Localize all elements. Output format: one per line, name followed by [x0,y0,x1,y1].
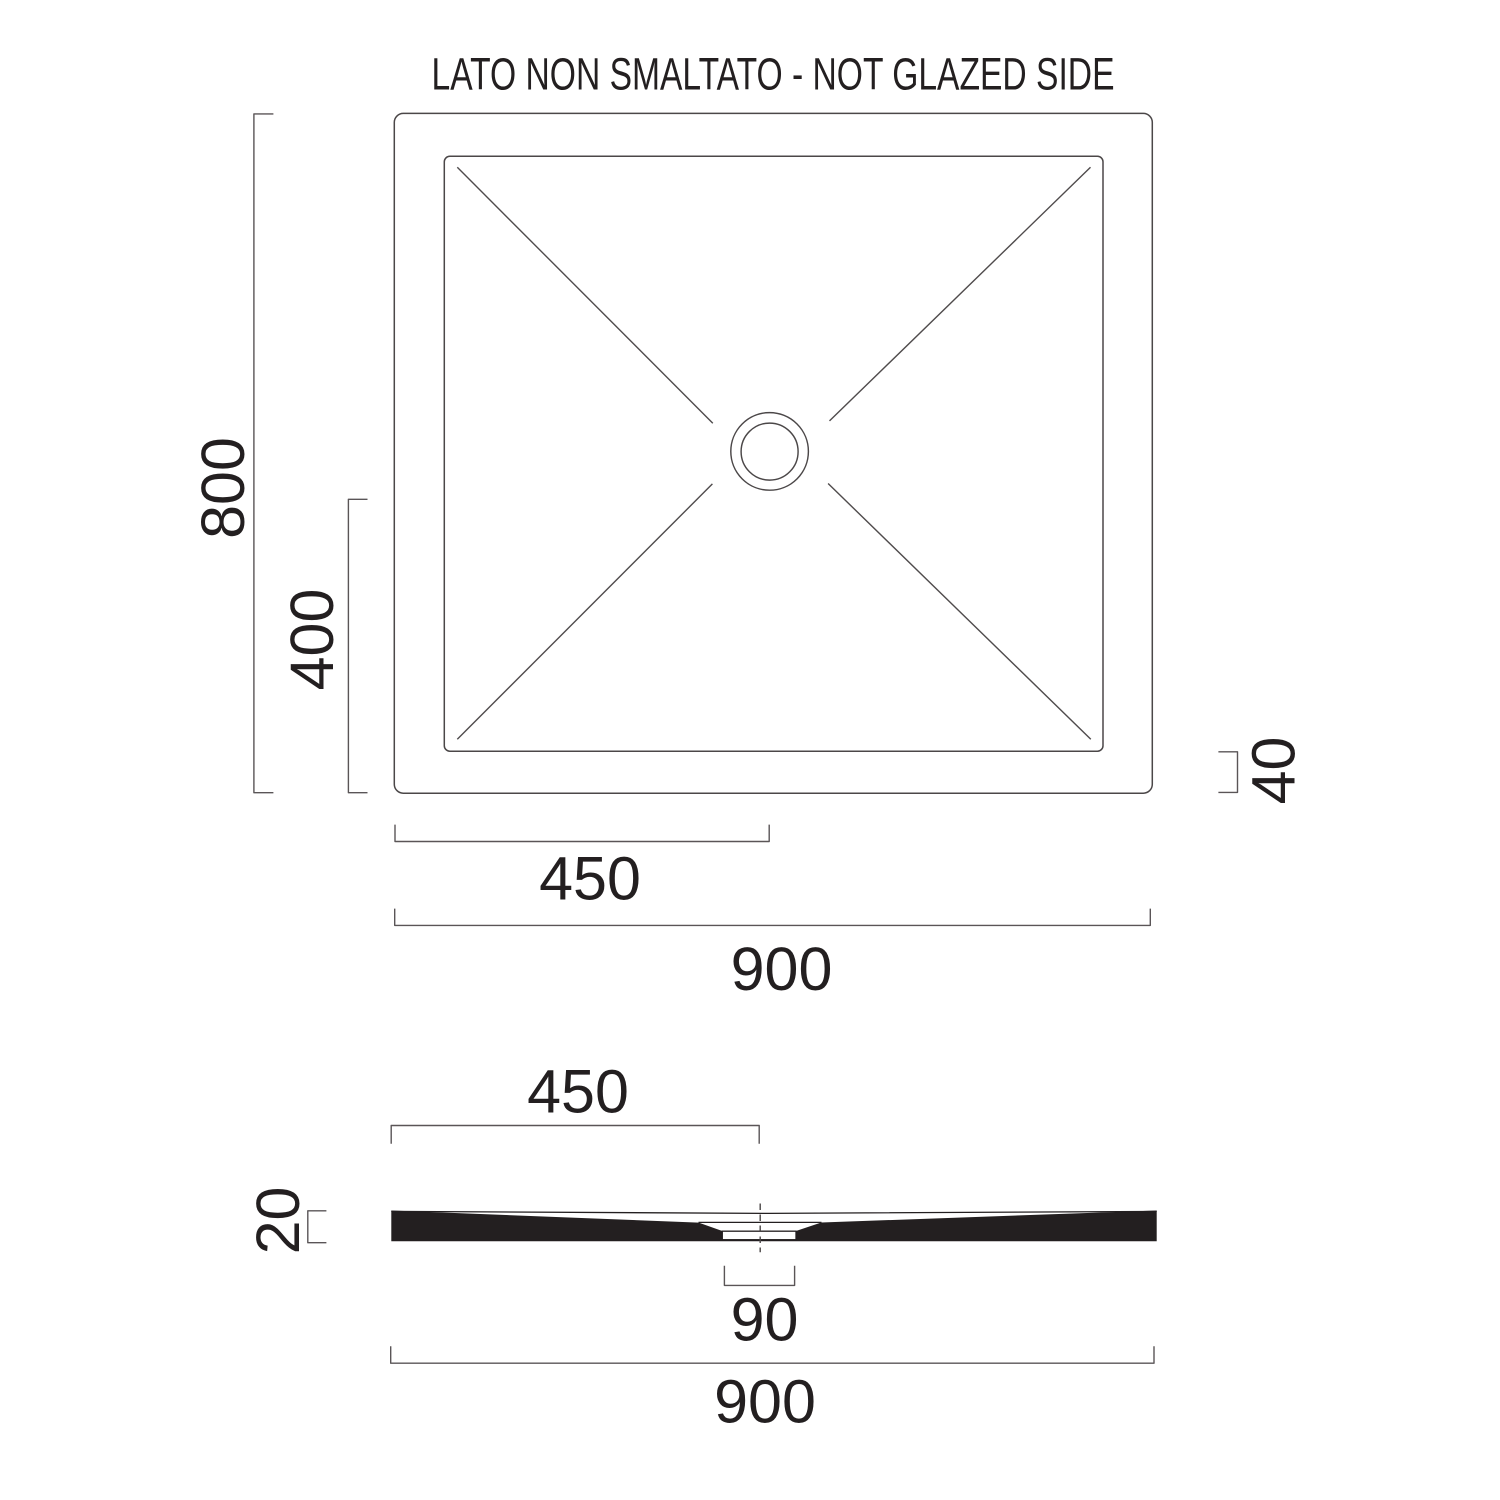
svg-text:LATO NON SMALTATO - NOT GLAZED: LATO NON SMALTATO - NOT GLAZED SIDE [432,49,1115,100]
svg-text:900: 900 [714,1368,816,1436]
svg-text:900: 900 [731,935,833,1003]
svg-text:450: 450 [527,1058,629,1126]
svg-text:450: 450 [539,845,641,913]
svg-text:90: 90 [731,1286,799,1354]
svg-text:20: 20 [244,1187,312,1255]
svg-text:800: 800 [189,437,257,539]
svg-text:40: 40 [1240,737,1308,805]
svg-text:400: 400 [278,589,346,691]
